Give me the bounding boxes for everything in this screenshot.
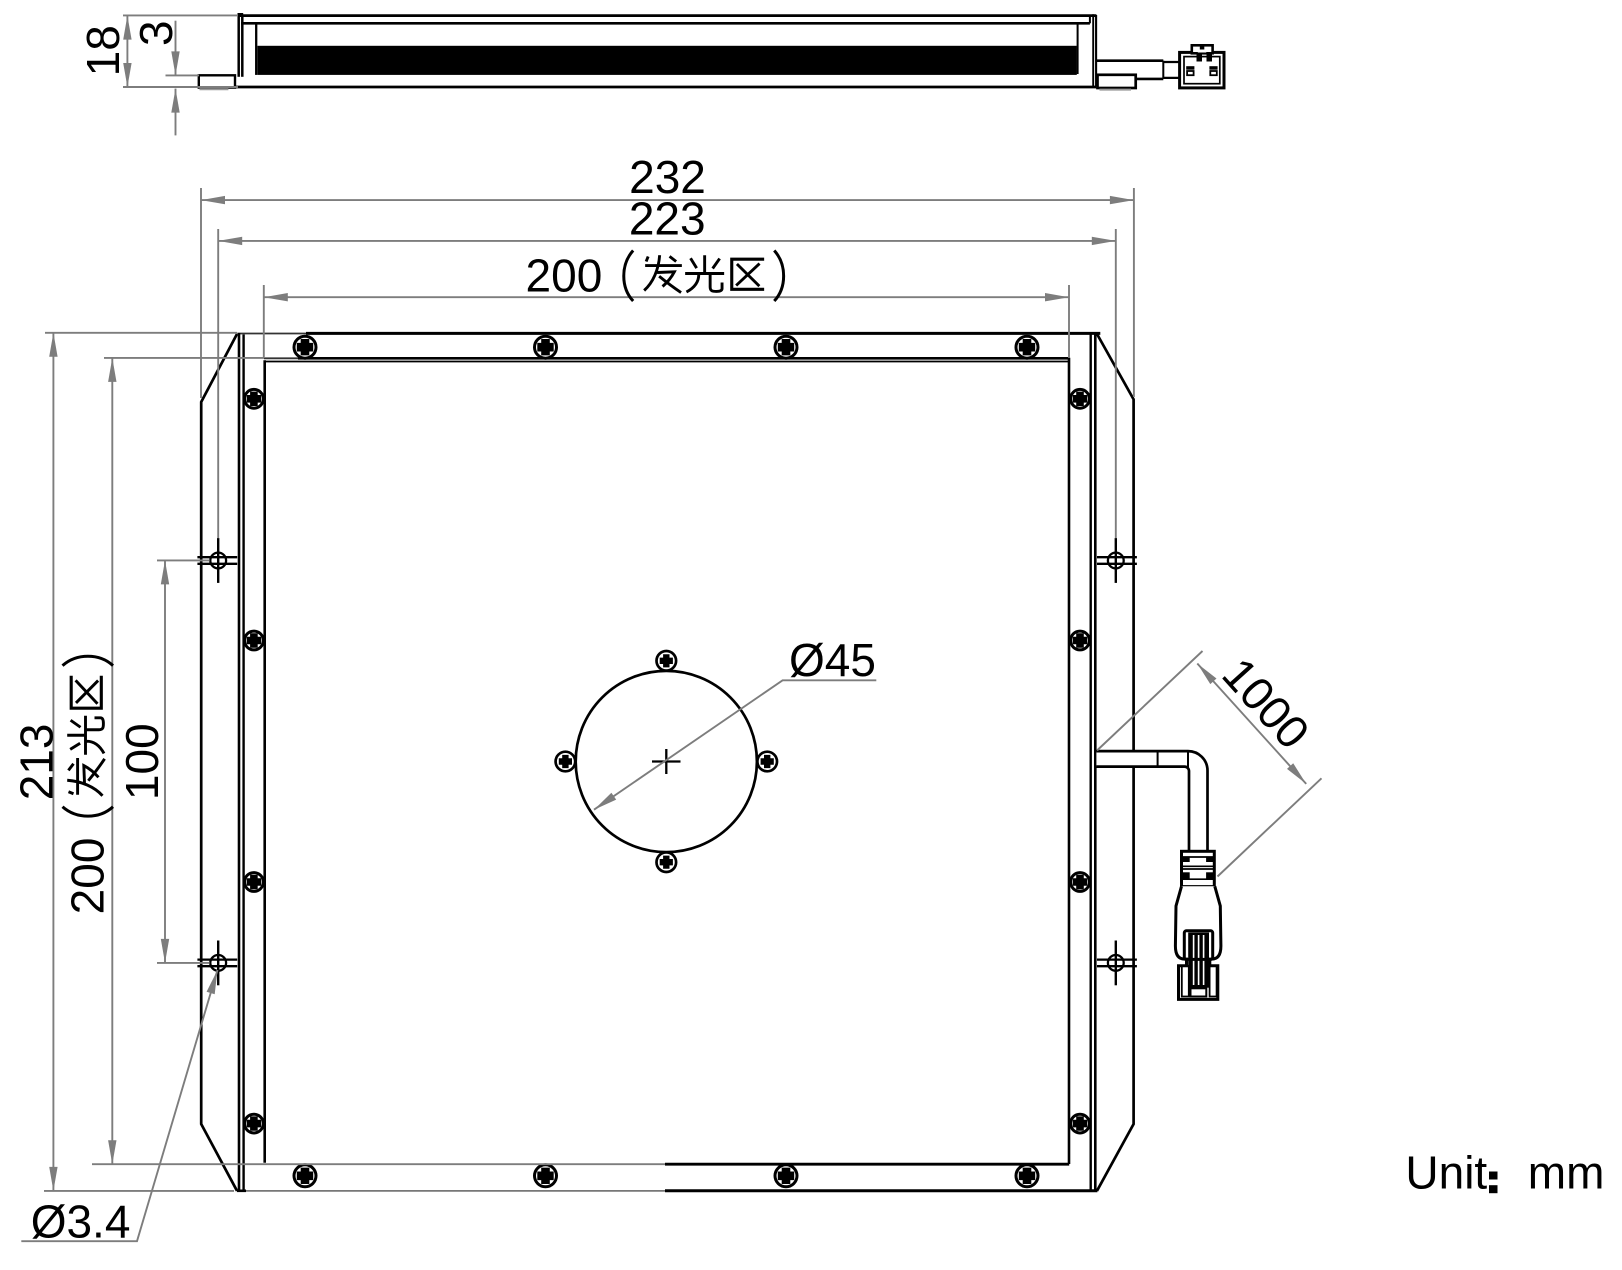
svg-text:mm: mm [1528, 1147, 1605, 1199]
svg-text:Unit: Unit [1405, 1147, 1487, 1199]
svg-text:223: 223 [629, 193, 706, 245]
svg-text:3: 3 [130, 20, 182, 46]
svg-text:213: 213 [11, 724, 63, 801]
svg-text:100: 100 [116, 723, 168, 800]
svg-text:Ø3.4: Ø3.4 [31, 1196, 131, 1248]
svg-text:18: 18 [77, 25, 129, 76]
svg-text:200: 200 [526, 250, 603, 302]
svg-text:Ø45: Ø45 [789, 634, 876, 686]
svg-text:200: 200 [62, 838, 114, 915]
